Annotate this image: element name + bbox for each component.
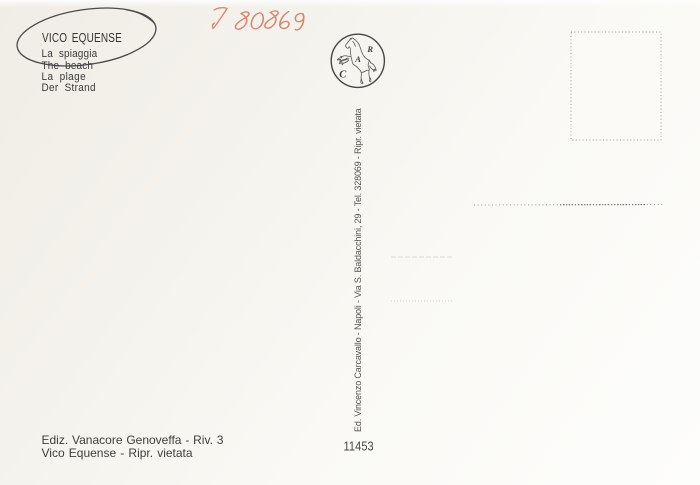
- svg-text:R: R: [366, 44, 373, 54]
- svg-text:A: A: [354, 54, 361, 64]
- svg-text:C: C: [339, 70, 347, 81]
